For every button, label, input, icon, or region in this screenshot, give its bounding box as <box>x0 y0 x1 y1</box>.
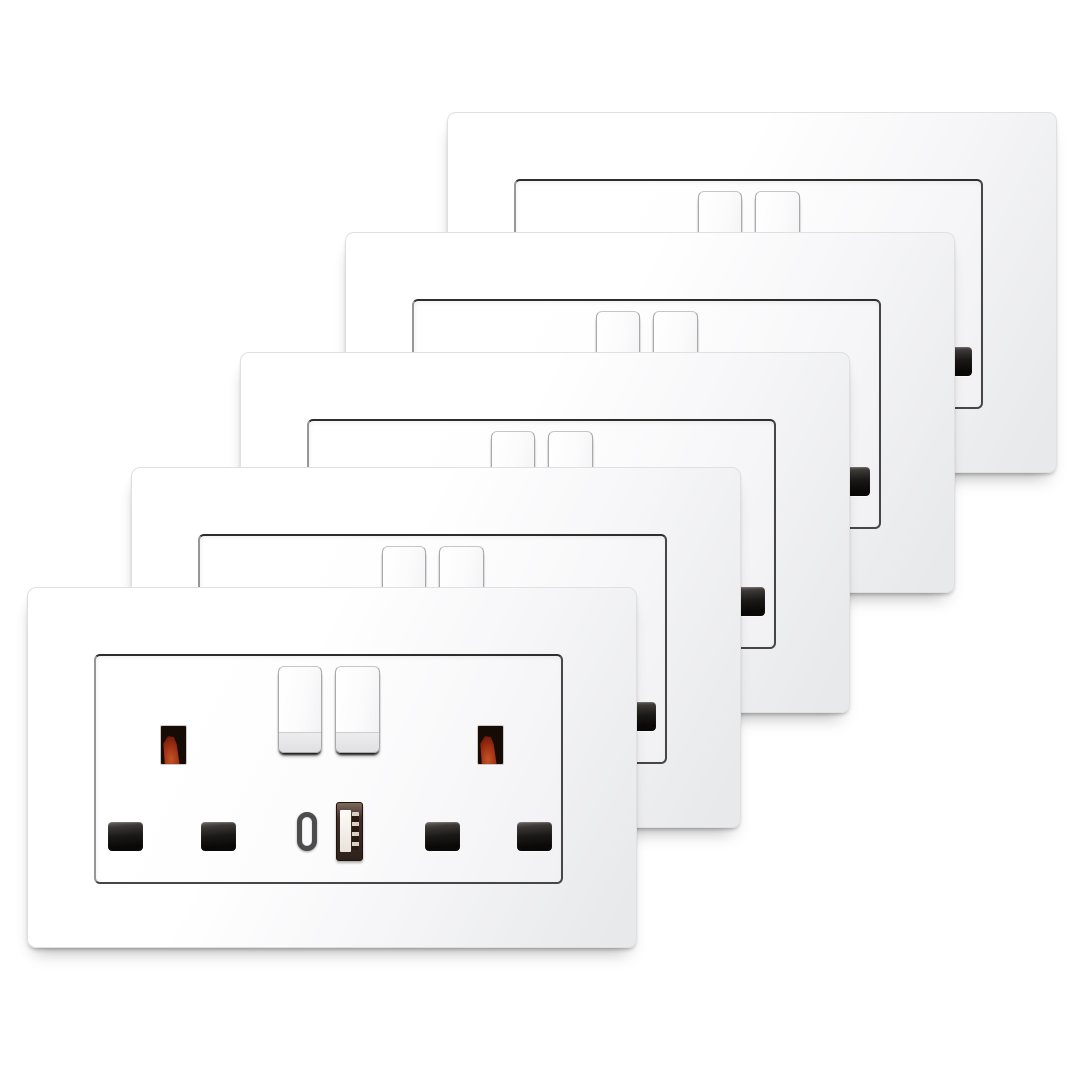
rocker-switch-left <box>278 666 322 753</box>
usb-c-port <box>297 812 317 851</box>
rocker-switch-bevel <box>336 732 379 752</box>
neon-indicator-left <box>160 725 187 765</box>
pin-hole-right-socket-l <box>425 822 460 851</box>
usb-a-tongue <box>340 810 351 852</box>
pin-hole-left-socket-l <box>108 822 143 851</box>
product-photo-stage <box>0 0 1080 1080</box>
faceplate-recess-panel <box>94 654 563 884</box>
rocker-switch-right <box>335 666 380 753</box>
neon-glow <box>480 733 498 764</box>
usb-a-port <box>336 802 363 861</box>
pin-hole-right-socket-r <box>517 822 552 851</box>
neon-glow <box>163 733 181 764</box>
pin-hole-left-socket-r <box>201 822 236 851</box>
neon-indicator-right <box>477 725 504 765</box>
faceplate-1-front <box>27 587 637 948</box>
rocker-switch-bevel <box>279 732 321 752</box>
usb-a-contact-pins <box>352 812 359 850</box>
